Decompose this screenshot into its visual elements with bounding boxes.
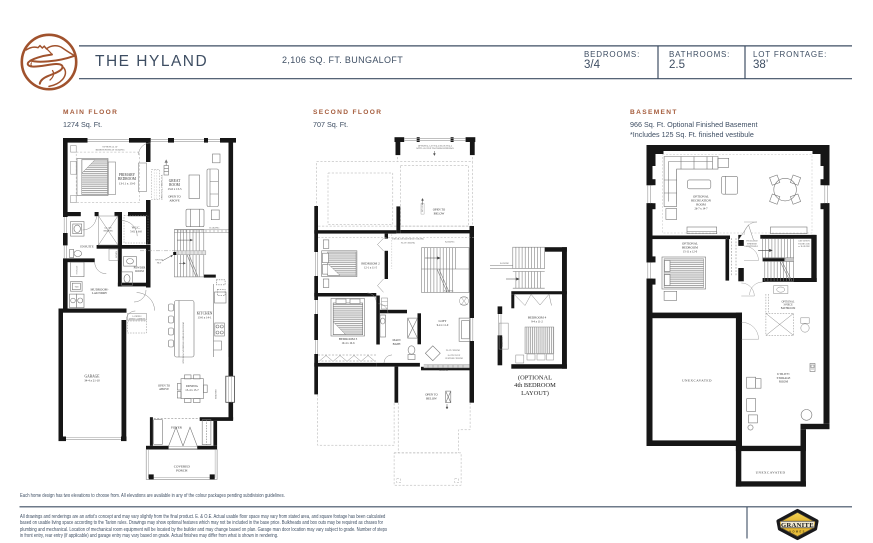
- svg-text:GRANITE: GRANITE: [781, 522, 814, 529]
- svg-text:BEDROOM TRAY CEILING: BEDROOM TRAY CEILING: [96, 148, 125, 151]
- svg-text:WITH ALCOVE TRANSOM WINDOWS: WITH ALCOVE TRANSOM WINDOWS: [416, 147, 454, 150]
- svg-text:BUILT-IN: BUILT-IN: [502, 337, 504, 346]
- svg-text:SHOWER: SHOWER: [103, 230, 113, 232]
- svg-text:8-0 TRAY UP: 8-0 TRAY UP: [448, 354, 461, 357]
- svg-text:PORCH: PORCH: [176, 469, 188, 473]
- svg-text:OPTIONAL WATERFALL BREAKFAST B: OPTIONAL WATERFALL BREAKFAST BAR: [182, 321, 185, 364]
- svg-text:BEDROOM 4: BEDROOM 4: [528, 316, 547, 320]
- svg-text:9-4 x 11-2: 9-4 x 11-2: [531, 320, 543, 323]
- svg-text:FOYER: FOYER: [171, 426, 183, 430]
- svg-text:ROOM: ROOM: [779, 380, 788, 384]
- svg-text:UNEXCAVATED: UNEXCAVATED: [682, 379, 712, 383]
- svg-text:13-11 x 13-0: 13-11 x 13-0: [119, 181, 136, 185]
- svg-text:26-7 x 14-7: 26-7 x 14-7: [694, 207, 708, 210]
- svg-text:BATH: BATH: [393, 342, 402, 346]
- svg-text:RAILING: RAILING: [439, 369, 448, 372]
- svg-text:BEDROOM 3: BEDROOM 3: [339, 337, 358, 341]
- svg-text:STORAGE: STORAGE: [76, 265, 79, 275]
- svg-text:DETAIL OF ELEVATED CEILING: DETAIL OF ELEVATED CEILING: [392, 238, 424, 241]
- svg-text:GET UP/DN: GET UP/DN: [798, 241, 810, 243]
- svg-text:12-1 x 11-5: 12-1 x 11-5: [364, 267, 378, 270]
- svg-text:ABOVE: ABOVE: [159, 387, 169, 391]
- svg-text:OPTIONAL 14-0 TALL REAR WALL: OPTIONAL 14-0 TALL REAR WALL: [418, 144, 453, 147]
- svg-text:FLAT CEILING: FLAT CEILING: [446, 349, 461, 352]
- svg-text:FINISHED: FINISHED: [747, 243, 757, 245]
- svg-text:4th BEDROOM: 4th BEDROOM: [514, 382, 556, 389]
- svg-text:FLAT CEILING: FLAT CEILING: [401, 242, 416, 245]
- svg-text:BEDROOM: BEDROOM: [682, 246, 698, 250]
- svg-text:13-4 x 15-7: 13-4 x 15-7: [185, 388, 199, 392]
- svg-text:LAUNDRY: LAUNDRY: [92, 291, 108, 295]
- svg-text:13-6 x 13-5: 13-6 x 13-5: [168, 187, 182, 191]
- svg-text:RAILING: RAILING: [445, 241, 455, 244]
- svg-text:BEDROOM 2: BEDROOM 2: [361, 262, 380, 266]
- svg-text:BELOW: BELOW: [434, 211, 445, 215]
- svg-text:OPTIONAL FIREPLACE: OPTIONAL FIREPLACE: [161, 174, 164, 200]
- svg-text:w/ RAILING: w/ RAILING: [798, 245, 810, 248]
- svg-text:LINEN: LINEN: [116, 251, 118, 258]
- svg-text:SKYLIGHT: SKYLIGHT: [422, 202, 424, 212]
- svg-text:SERVERY: SERVERY: [216, 389, 218, 399]
- svg-text:BELOW: BELOW: [426, 396, 437, 400]
- svg-text:TUB: TUB: [75, 287, 80, 289]
- svg-text:ABOVE: ABOVE: [169, 198, 180, 202]
- svg-text:W.I.C.: W.I.C.: [132, 226, 141, 230]
- svg-text:ENSUITE: ENSUITE: [80, 245, 93, 249]
- svg-text:CUSTOM CEILING: CUSTOM CEILING: [445, 358, 464, 360]
- svg-text:UNEXCAVATED: UNEXCAVATED: [756, 471, 786, 475]
- svg-text:NLT: NLT: [157, 261, 162, 264]
- svg-text:LOFT: LOFT: [439, 319, 447, 323]
- svg-text:LAYOUT): LAYOUT): [521, 390, 549, 397]
- svg-text:RAILING: RAILING: [444, 290, 454, 293]
- svg-text:13-0 x 14-1: 13-0 x 14-1: [198, 316, 212, 320]
- svg-text:UPPER CABINETS: UPPER CABINETS: [129, 317, 146, 320]
- svg-text:INCLUDED: INCLUDED: [746, 241, 758, 243]
- svg-text:STAIRCASE: STAIRCASE: [798, 242, 810, 245]
- svg-text:RAILING: RAILING: [500, 262, 509, 265]
- svg-text:34-4 x 21-10: 34-4 x 21-10: [84, 379, 100, 383]
- svg-text:15-11 x 12-0: 15-11 x 12-0: [683, 250, 698, 253]
- svg-text:RAILING: RAILING: [210, 227, 220, 230]
- svg-text:9-4 x 11-0: 9-4 x 11-0: [437, 324, 449, 327]
- svg-text:HOMES: HOMES: [789, 529, 806, 533]
- svg-text:ROOM: ROOM: [135, 270, 144, 273]
- svg-text:BATHROOM: BATHROOM: [781, 307, 796, 310]
- svg-text:10-4 x 10-6: 10-4 x 10-6: [341, 342, 355, 345]
- svg-text:GLASS: GLASS: [105, 227, 113, 230]
- svg-text:ROOM: ROOM: [696, 203, 706, 207]
- svg-text:(OPTIONAL: (OPTIONAL: [518, 375, 552, 382]
